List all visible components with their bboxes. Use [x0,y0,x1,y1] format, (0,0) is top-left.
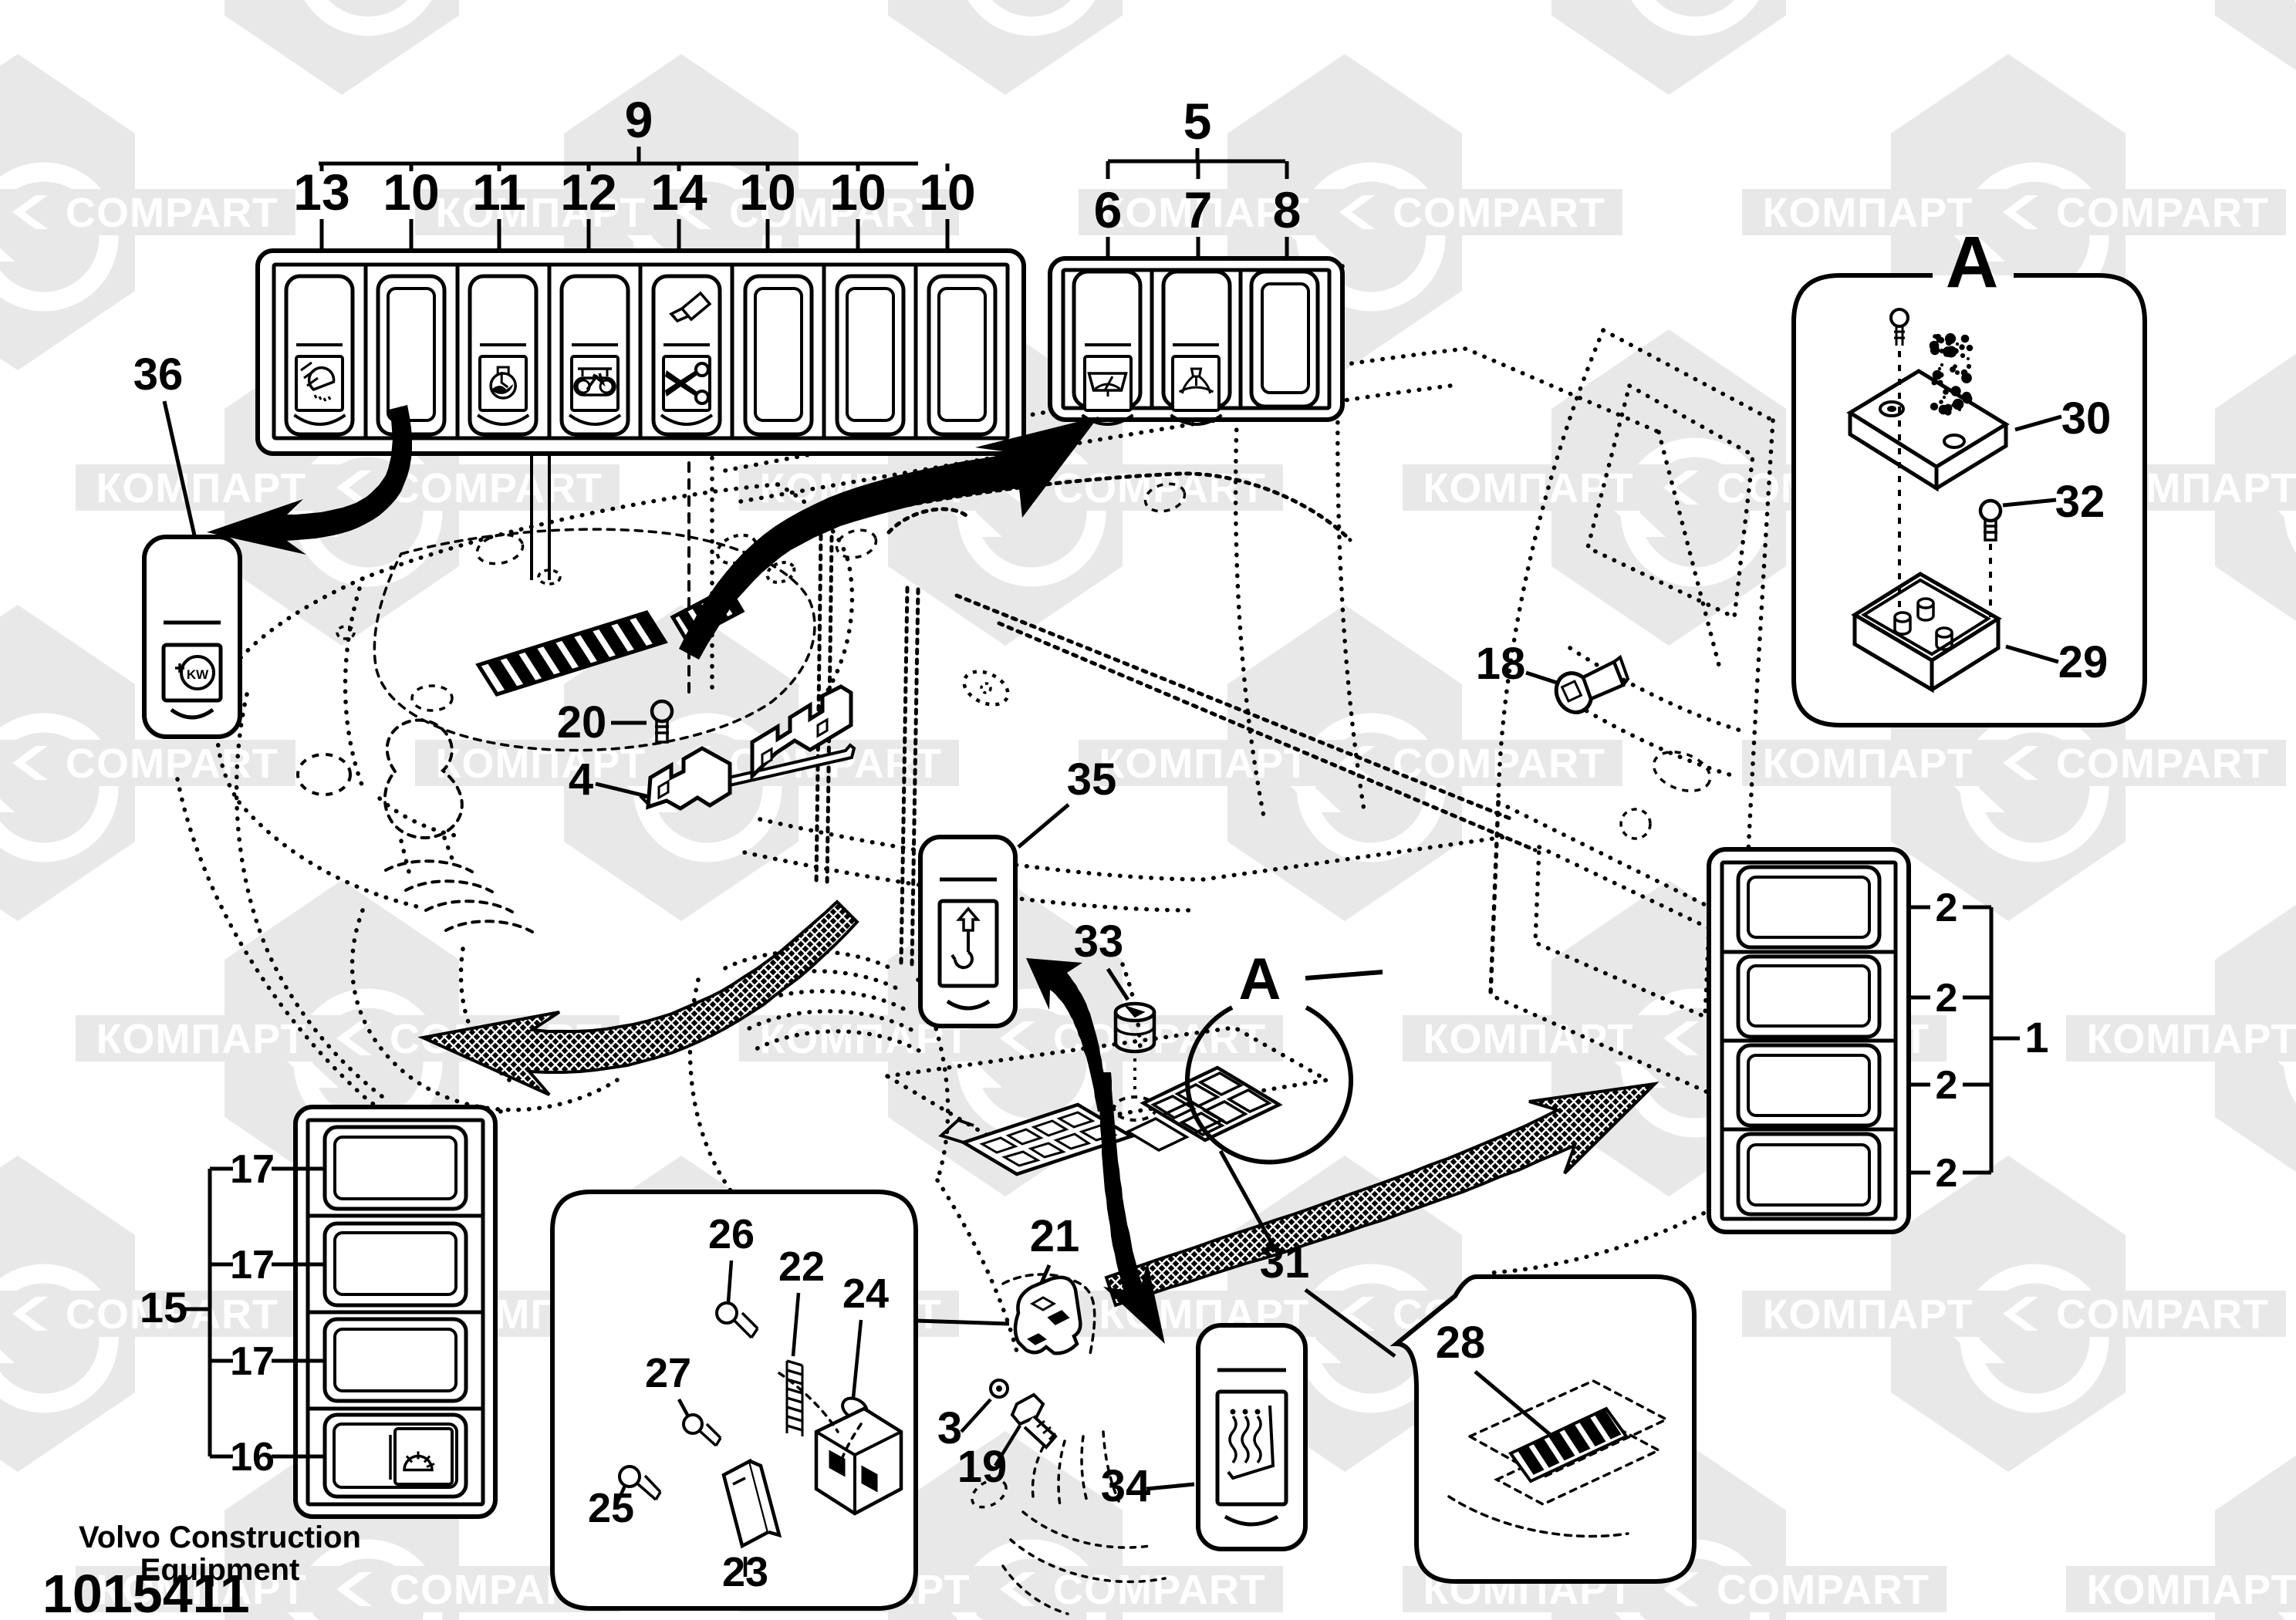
svg-text:10: 10 [739,164,795,221]
svg-text:6: 6 [1094,181,1123,238]
svg-text:KW: KW [187,667,209,682]
svg-text:2: 2 [1936,1151,1958,1196]
svg-text:КОМПАРТ: КОМПАРТ [1762,190,1973,236]
svg-text:21: 21 [1030,1211,1080,1261]
svg-text:A: A [1239,947,1281,1012]
svg-text:КОМПАРТ: КОМПАРТ [1423,465,1633,511]
svg-text:КОМПАРТ: КОМПАРТ [96,465,306,511]
svg-text:25: 25 [588,1485,634,1531]
svg-text:COMPART: COMPART [1053,1567,1266,1613]
svg-text:КОМПАРТ: КОМПАРТ [1423,1016,1633,1062]
svg-text:36: 36 [133,349,184,400]
svg-text:26: 26 [708,1211,755,1257]
svg-text:COMPART: COMPART [1393,190,1606,236]
svg-text:16: 16 [230,1435,275,1480]
svg-text:Volvo Construction: Volvo Construction [79,1520,361,1554]
svg-text:COMPART: COMPART [2056,741,2269,787]
svg-text:17: 17 [230,1147,275,1192]
svg-text:13: 13 [293,164,349,221]
svg-text:2: 2 [1936,1063,1958,1108]
svg-text:7: 7 [1184,181,1213,238]
svg-text:15: 15 [140,1283,187,1331]
svg-text:COMPART: COMPART [2056,1291,2269,1338]
svg-text:2: 2 [1936,886,1958,930]
svg-text:20: 20 [557,697,607,748]
svg-text:COMPART: COMPART [66,190,279,236]
svg-text:КОМПАРТ: КОМПАРТ [2086,1016,2296,1062]
svg-text:COMPART: COMPART [390,465,603,511]
svg-text:A: A [1946,221,1999,303]
svg-text:10: 10 [829,164,886,221]
svg-text:COMPART: COMPART [2056,190,2269,236]
svg-text:10: 10 [383,164,439,221]
svg-text:1: 1 [2024,1013,2048,1061]
svg-text:34: 34 [1101,1461,1151,1511]
svg-text:22: 22 [778,1244,825,1290]
svg-text:18: 18 [1476,639,1526,689]
svg-text:COMPART: COMPART [1717,1567,1930,1613]
svg-text:9: 9 [625,91,653,148]
svg-text:33: 33 [1074,916,1124,967]
svg-text:COMPART: COMPART [66,741,279,787]
svg-text:11: 11 [472,164,526,221]
svg-text:КОМПАРТ: КОМПАРТ [2086,1567,2296,1613]
svg-text:24: 24 [842,1271,889,1317]
svg-text:5: 5 [1183,93,1212,150]
svg-text:32: 32 [2055,477,2105,527]
svg-text:10: 10 [919,164,975,221]
svg-text:КОМПАРТ: КОМПАРТ [1762,1291,1973,1338]
svg-text:8: 8 [1273,181,1302,238]
svg-text:35: 35 [1067,754,1117,805]
svg-text:17: 17 [230,1339,275,1384]
svg-text:30: 30 [2061,393,2112,444]
svg-text:КОМПАРТ: КОМПАРТ [96,1016,306,1062]
svg-text:29: 29 [2058,637,2109,687]
svg-text:2: 2 [1936,976,1958,1021]
svg-text:12: 12 [560,164,616,221]
svg-text:КОМПАРТ: КОМПАРТ [1099,741,1309,787]
svg-text:31: 31 [1260,1237,1310,1288]
svg-text:17: 17 [230,1243,275,1288]
svg-text:27: 27 [645,1350,691,1396]
svg-text:КОМПАРТ: КОМПАРТ [1762,741,1973,787]
svg-text:28: 28 [1436,1318,1486,1368]
svg-text:19: 19 [957,1442,1008,1492]
svg-text:4: 4 [569,754,593,805]
svg-text:1015411: 1015411 [42,1564,250,1620]
svg-text:14: 14 [650,164,707,221]
